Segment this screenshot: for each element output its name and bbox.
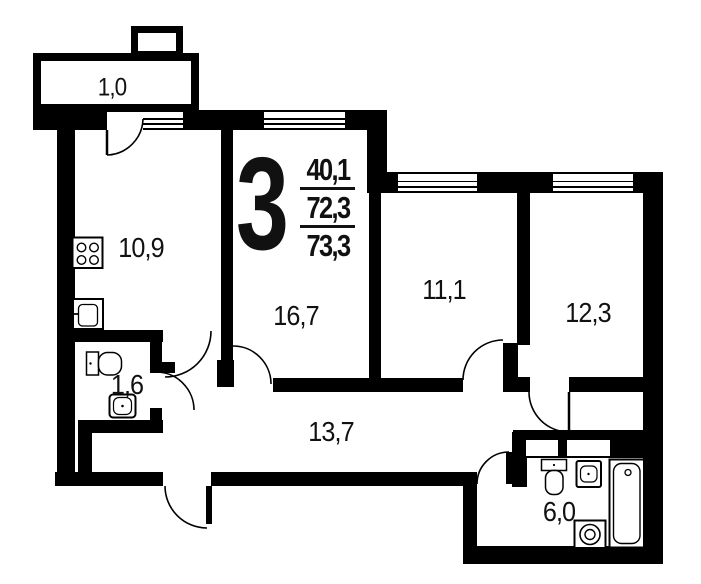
- stove-icon: [73, 238, 103, 269]
- living-room-area-label: 16,7: [273, 300, 318, 332]
- washing-machine-icon: [575, 521, 606, 549]
- bedroom2-area-label: 12,3: [565, 297, 610, 329]
- kitchen-door-arc: [165, 331, 211, 377]
- bedroom2-door-arc: [529, 392, 569, 432]
- bedroom1-door-arc: [463, 340, 503, 380]
- bathroom-door-arc: [477, 452, 509, 484]
- living-room-door-arc: [233, 346, 271, 384]
- bathroom-area-label: 6,0: [543, 496, 575, 528]
- bathroom-toilet-icon: [542, 460, 567, 495]
- apartment-type: 3: [236, 138, 289, 270]
- area-summary: 40,1 72,3 73,3: [300, 152, 356, 263]
- kitchen-area-label: 10,9: [118, 232, 163, 264]
- bathtub-icon: [610, 460, 645, 548]
- bathroom-sink-icon: [577, 461, 602, 487]
- balcony-door-arc: [107, 119, 143, 155]
- area-living: 40,1: [305, 152, 351, 187]
- wc-door-arc: [156, 372, 194, 410]
- wc-area-label: 1,6: [111, 369, 143, 401]
- hallway-area-label: 13,7: [308, 416, 353, 448]
- balcony-area-label: 1,0: [98, 74, 127, 103]
- floor-plan: 3 40,1 72,3 73,3 1,0 10,9 1,6 16,7 13,7 …: [0, 0, 701, 584]
- kitchen-sink-icon: [58, 299, 103, 329]
- bedroom1-area-label: 11,1: [422, 274, 466, 306]
- area-total: 73,3: [305, 228, 351, 263]
- entry-door-arc: [165, 486, 207, 528]
- area-usable: 72,3: [305, 190, 351, 225]
